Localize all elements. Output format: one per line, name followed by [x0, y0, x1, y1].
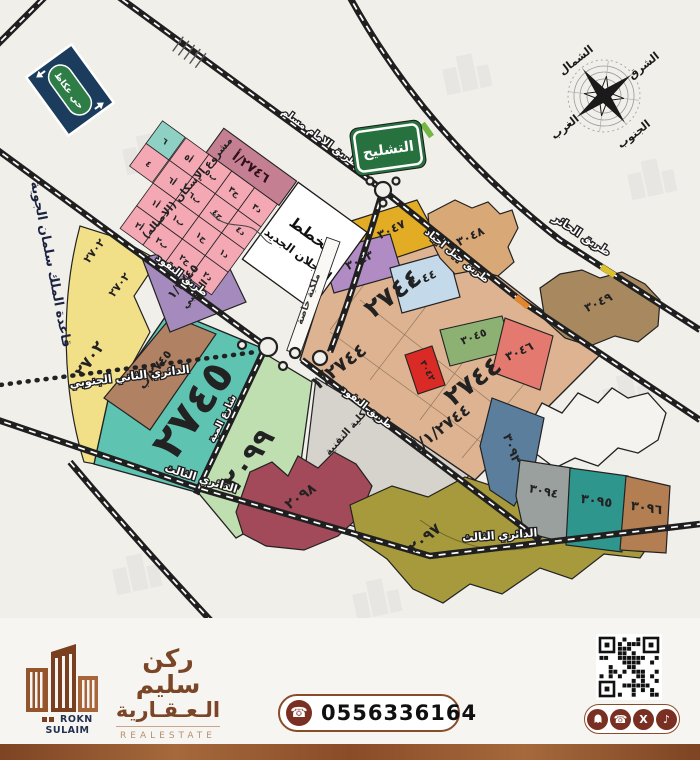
footer: ROKN SULAIM ركن سليم الـعـقـارية REALEST… — [0, 618, 700, 760]
bottom-accent-bar — [0, 744, 700, 760]
social-links: ☎ X ♪ — [584, 704, 680, 734]
phone-icon: ☎ — [286, 700, 312, 726]
whatsapp-icon[interactable]: ☎ — [610, 709, 631, 730]
brand-name-en: ROKN SULAIM — [20, 714, 115, 736]
map-canvas: ٢٧٤٦/أ أ٥ب٥ج٣د٣ أ٦ب٦ج٤د٤ أ١ب١ج١د١ أ٢ب٢ج٢… — [0, 0, 700, 620]
brand-ar-line1: ركن سليم — [108, 646, 228, 699]
qr-code[interactable] — [596, 634, 662, 700]
brand-sub-en: REALESTATE — [108, 731, 228, 741]
logo-square-icon — [42, 717, 47, 722]
brand-logo-buildings-icon — [20, 638, 115, 716]
brand-divider — [116, 726, 220, 727]
phone-pill[interactable]: ☎ 0556336164 — [278, 694, 460, 732]
x-icon[interactable]: X — [633, 709, 654, 730]
tiktok-icon[interactable]: ♪ — [656, 709, 677, 730]
brand-wordmark-ar: ركن سليم الـعـقـارية REALESTATE — [108, 646, 228, 741]
snapchat-icon[interactable] — [587, 709, 608, 730]
brand-logo: ROKN SULAIM — [20, 638, 115, 733]
logo-square-icon — [49, 717, 54, 722]
phone-number: 0556336164 — [321, 701, 477, 725]
tashleeh-sign: التشليح — [349, 119, 427, 177]
brand-ar-line2: الـعـقـارية — [108, 699, 228, 722]
